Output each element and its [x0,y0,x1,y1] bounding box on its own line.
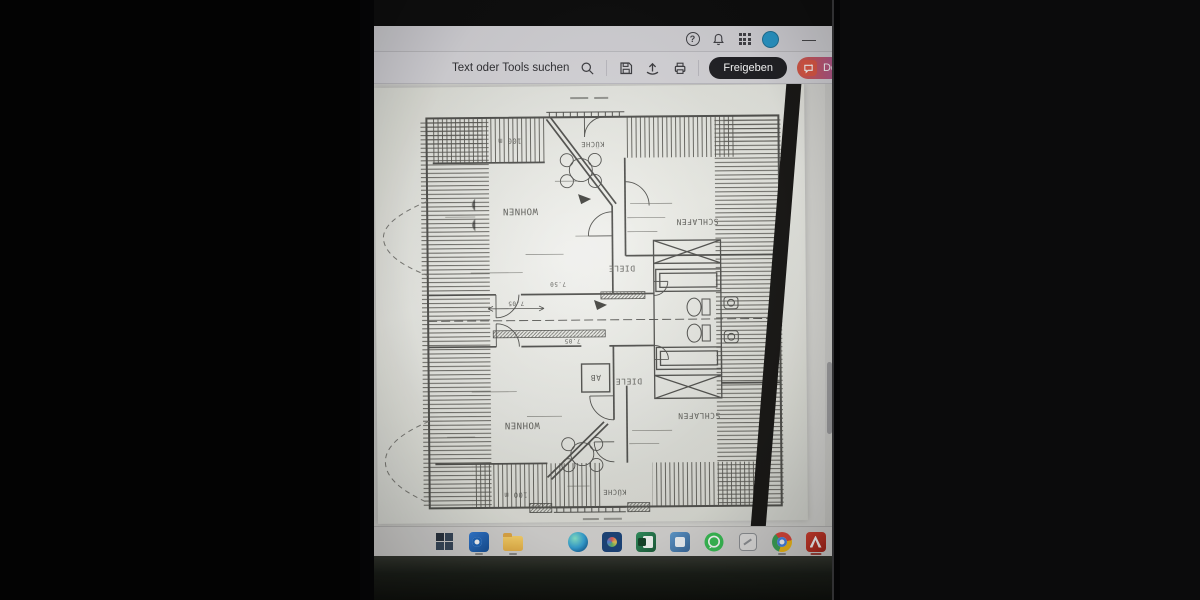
room-label: SCHLAFEN [676,217,719,226]
snipping-tool-icon [739,533,757,551]
room-label: WOHNEN [502,205,538,215]
room-label: WOHNEN [504,419,540,429]
search-field[interactable]: Text oder Tools suchen [452,62,569,74]
apps-grid-button[interactable] [736,31,753,48]
taskbar-outlook[interactable] [468,531,489,552]
dim-label: 7.05 [508,300,525,307]
taskbar-edge[interactable] [567,531,588,552]
account-avatar[interactable] [762,31,779,48]
door-swings [494,116,669,462]
file-explorer-icon [503,536,523,551]
hatch-left [420,120,491,507]
print-icon[interactable] [671,60,688,77]
room-label: KÜCHE [581,140,605,149]
taskbar-acrobat[interactable] [805,531,826,552]
hatch-top-right [624,116,736,158]
scanned-floorplan-page: 100 m KÜCHE WOHNEN SCHLAFEN DIELE AB DIE… [374,84,808,524]
floorplan-drawing: 100 m KÜCHE WOHNEN SCHLAFEN DIELE AB DIE… [374,84,808,524]
search-icon[interactable] [579,60,596,77]
excel-icon [636,532,656,552]
taskbar-start-button[interactable] [434,531,455,552]
room-label: KÜCHE [603,488,627,497]
app-toolbar: Text oder Tools suchen Freigeben [374,52,834,84]
ai-assistant-icon [801,60,817,76]
whatsapp-icon [704,532,724,552]
room-label: 100 m [498,137,522,145]
room-labels: 100 m KÜCHE WOHNEN SCHLAFEN DIELE AB DIE… [498,135,721,499]
room-label: DIELE [608,264,635,273]
monitor-bezel-edge [832,0,834,600]
ai-assistant-button[interactable]: Den KI-Assistent [797,57,834,79]
dim-label: 7.05 [564,337,581,344]
window-titlebar: ? — [374,26,834,52]
windows-taskbar [374,526,834,556]
room-label: 100 m [504,491,528,499]
monitor-screen: ? — Text oder Too [374,0,834,600]
room-label: SCHLAFEN [678,411,721,420]
photo-of-monitor: ? — Text oder Too [0,0,1200,600]
chrome-icon [772,532,792,552]
desk-below-monitor [374,556,834,600]
room-label: AB [590,373,601,382]
taskbar-photos[interactable] [601,531,622,552]
acrobat-reader-icon [806,532,826,552]
apps-grid-icon [739,33,751,45]
help-button[interactable]: ? [684,31,701,48]
room-label: DIELE [615,377,642,386]
outlook-icon [469,532,489,552]
help-icon: ? [686,32,700,46]
share-button[interactable]: Freigeben [709,57,787,79]
bell-icon [711,32,726,47]
edge-icon [568,532,588,552]
taskbar-whatsapp[interactable] [703,531,724,552]
windows-start-icon [436,533,454,551]
toolbar-divider [606,60,607,76]
share-upload-icon[interactable] [644,60,661,77]
photos-icon [602,532,622,552]
minimize-button[interactable]: — [802,34,816,44]
teams-icon [670,532,690,552]
document-viewport: 100 m KÜCHE WOHNEN SCHLAFEN DIELE AB DIE… [374,84,834,526]
taskbar-chrome[interactable] [771,531,792,552]
hatch-bottom-left [472,463,600,508]
taskbar-snipping-tool[interactable] [737,531,758,552]
dim-label: 7.50 [550,280,567,287]
hatch-bottom-right [652,462,760,507]
taskbar-file-explorer[interactable] [502,531,523,552]
taskbar-teams[interactable] [669,531,690,552]
notifications-button[interactable] [710,31,727,48]
toolbar-divider [698,60,699,76]
save-icon[interactable] [617,60,634,77]
taskbar-excel[interactable] [635,531,656,552]
